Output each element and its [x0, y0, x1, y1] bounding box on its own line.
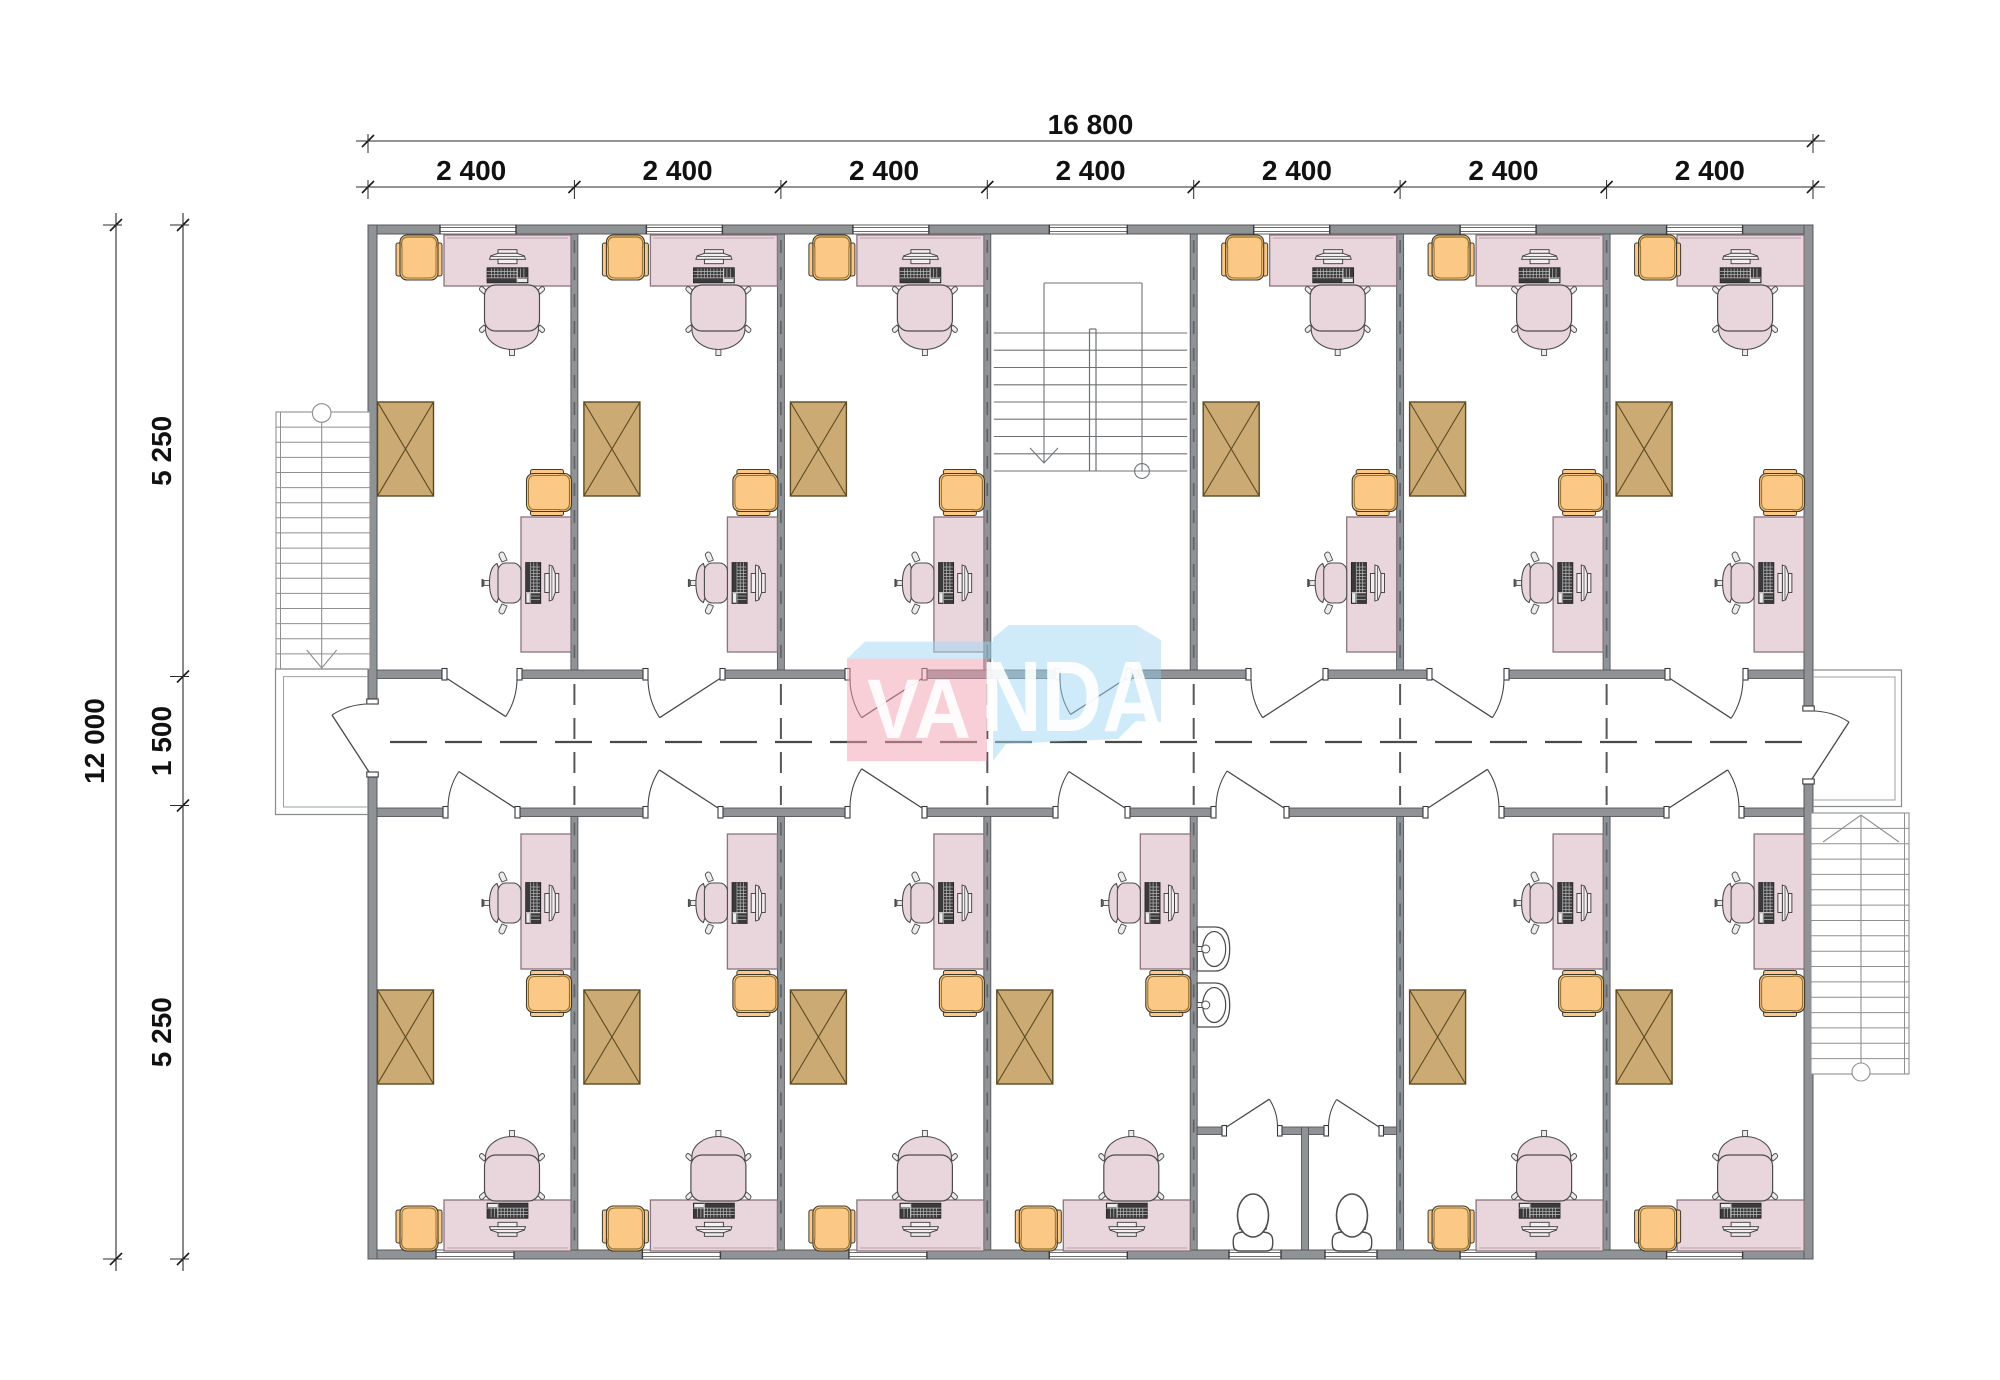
svg-text:NDA: NDA [981, 641, 1163, 753]
svg-text:2 400: 2 400 [436, 155, 506, 186]
svg-text:12 000: 12 000 [79, 698, 110, 784]
svg-text:2 400: 2 400 [1468, 155, 1538, 186]
svg-text:2 400: 2 400 [849, 155, 919, 186]
svg-text:16 800: 16 800 [1048, 109, 1134, 140]
svg-text:1 500: 1 500 [146, 706, 177, 776]
svg-text:5 250: 5 250 [146, 997, 177, 1067]
svg-text:2 400: 2 400 [1055, 155, 1125, 186]
svg-text:2 400: 2 400 [643, 155, 713, 186]
svg-text:2 400: 2 400 [1262, 155, 1332, 186]
svg-text:VA: VA [867, 662, 971, 756]
svg-text:2 400: 2 400 [1675, 155, 1745, 186]
svg-text:5 250: 5 250 [146, 416, 177, 486]
